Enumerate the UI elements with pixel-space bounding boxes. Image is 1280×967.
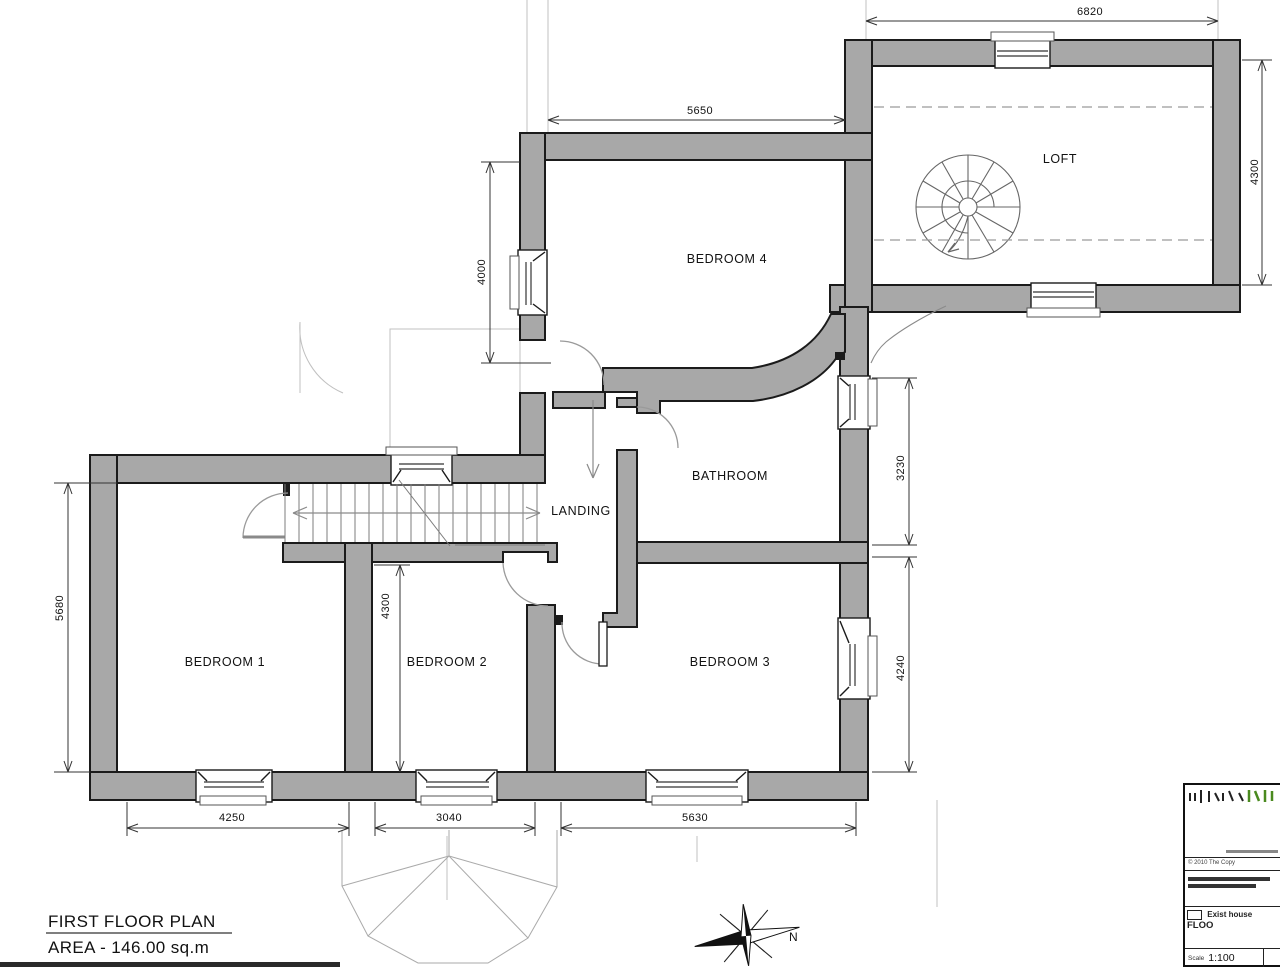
scale-row-divider <box>1263 949 1280 967</box>
bathroom-bottom-wall <box>637 542 868 563</box>
room-label-bedroom3: BEDROOM 3 <box>690 655 770 669</box>
bedroom4-window <box>510 250 547 315</box>
title-block-sub-line <box>1185 845 1280 857</box>
bedroom1-2-divider-wall <box>345 543 372 772</box>
title-block-scale-row: Scale 1:100 <box>1185 948 1280 967</box>
bedroom1-window <box>196 770 272 805</box>
loft-bottom-window <box>1027 283 1100 317</box>
dim-bedroom3-width: 5630 <box>682 812 708 824</box>
landing-nook-wall <box>553 392 605 408</box>
title-block-copyright: © 2010 The Copy <box>1185 857 1280 870</box>
bedroom2-3-divider-wall <box>527 605 555 772</box>
bedroom1-door-arc <box>243 493 288 538</box>
dimension-labels: 6820 4300 5650 4000 3230 4240 5680 4300 … <box>54 6 1261 824</box>
loft-top-window <box>991 32 1054 68</box>
spiral-stringer-curve <box>871 306 946 363</box>
dim-bedroom3-depth: 4240 <box>895 655 907 681</box>
room-label-bedroom1: BEDROOM 1 <box>185 655 265 669</box>
bedroom4-top-wall <box>520 133 872 160</box>
dim-bedroom4-depth: 4000 <box>476 259 488 285</box>
below-stairs-wall <box>283 543 557 562</box>
north-compass-icon <box>691 899 802 967</box>
title-block-address <box>1185 870 1280 906</box>
loft-left-wall <box>845 40 872 312</box>
bedroom4-left-wall-mid <box>520 312 545 340</box>
bedroom4-left-wall-upper <box>520 133 545 253</box>
landing-window <box>386 447 457 485</box>
title-block-project: Exist house FLOO <box>1185 906 1280 948</box>
plan-title-text: FIRST FLOOR PLAN <box>48 912 216 931</box>
title-block: © 2010 The Copy Exist house FLOO Scale 1… <box>1183 783 1280 967</box>
bathroom-left-wall <box>603 450 637 627</box>
bedroom4-door-arc <box>560 341 604 385</box>
dim-bedroom1-width: 4250 <box>219 812 245 824</box>
bedroom4-left-wall-lower <box>520 393 545 457</box>
bedroom2-door-arc <box>503 563 548 606</box>
spiral-staircase <box>871 155 1020 363</box>
scale-value: 1:100 <box>1208 952 1263 964</box>
left-outer-wall <box>90 455 117 800</box>
bathroom-window <box>838 376 877 429</box>
bedroom3-side-window <box>838 618 877 699</box>
loft-right-wall <box>1213 40 1240 312</box>
sheet-title: FIRST FLOOR PLAN AREA - 146.00 sq.m <box>46 912 232 957</box>
landing-top-wall <box>90 455 545 483</box>
dim-loft-depth: 4300 <box>1249 159 1261 185</box>
bedroom3-door-arc <box>562 622 603 664</box>
dim-bathroom-depth: 3230 <box>895 455 907 481</box>
north-label: N <box>789 930 798 944</box>
drawing-icon <box>1187 910 1202 920</box>
room-label-loft: LOFT <box>1043 152 1077 166</box>
floor-plan-sheet: 6820 4300 5650 4000 3230 4240 5680 4300 … <box>0 0 1280 967</box>
bathroom-left-wall-stub <box>617 398 637 407</box>
floor-plan-canvas: 6820 4300 5650 4000 3230 4240 5680 4300 … <box>0 0 1280 967</box>
bedroom3-bottom-window <box>646 770 748 805</box>
bedroom3-door-leaf <box>599 622 607 666</box>
scale-label: Scale <box>1185 955 1208 962</box>
room-label-bedroom2: BEDROOM 2 <box>407 655 487 669</box>
bedroom4-bottom-curved-wall <box>603 314 845 413</box>
project-name: Exist house <box>1207 910 1252 919</box>
bay-roof-outline <box>342 830 557 963</box>
dim-bedroom4-width: 5650 <box>687 105 713 117</box>
room-label-bathroom: BATHROOM <box>692 469 768 483</box>
sheet-name: FLOO <box>1187 920 1213 931</box>
room-label-landing: LANDING <box>551 504 611 518</box>
room-label-bedroom4: BEDROOM 4 <box>687 252 767 266</box>
dim-bedroom2-depth: 4300 <box>380 593 392 619</box>
loft-headroom-dashed-lines <box>874 107 1212 240</box>
dim-bedroom1-depth: 5680 <box>54 595 66 621</box>
company-logo-icon <box>1185 785 1280 845</box>
plan-area-text: AREA - 146.00 sq.m <box>48 938 209 957</box>
dim-bedroom2-width: 3040 <box>436 812 462 824</box>
dim-loft-width: 6820 <box>1077 6 1103 18</box>
bedroom2-window <box>416 770 497 805</box>
sheet-edge-line <box>0 962 340 967</box>
